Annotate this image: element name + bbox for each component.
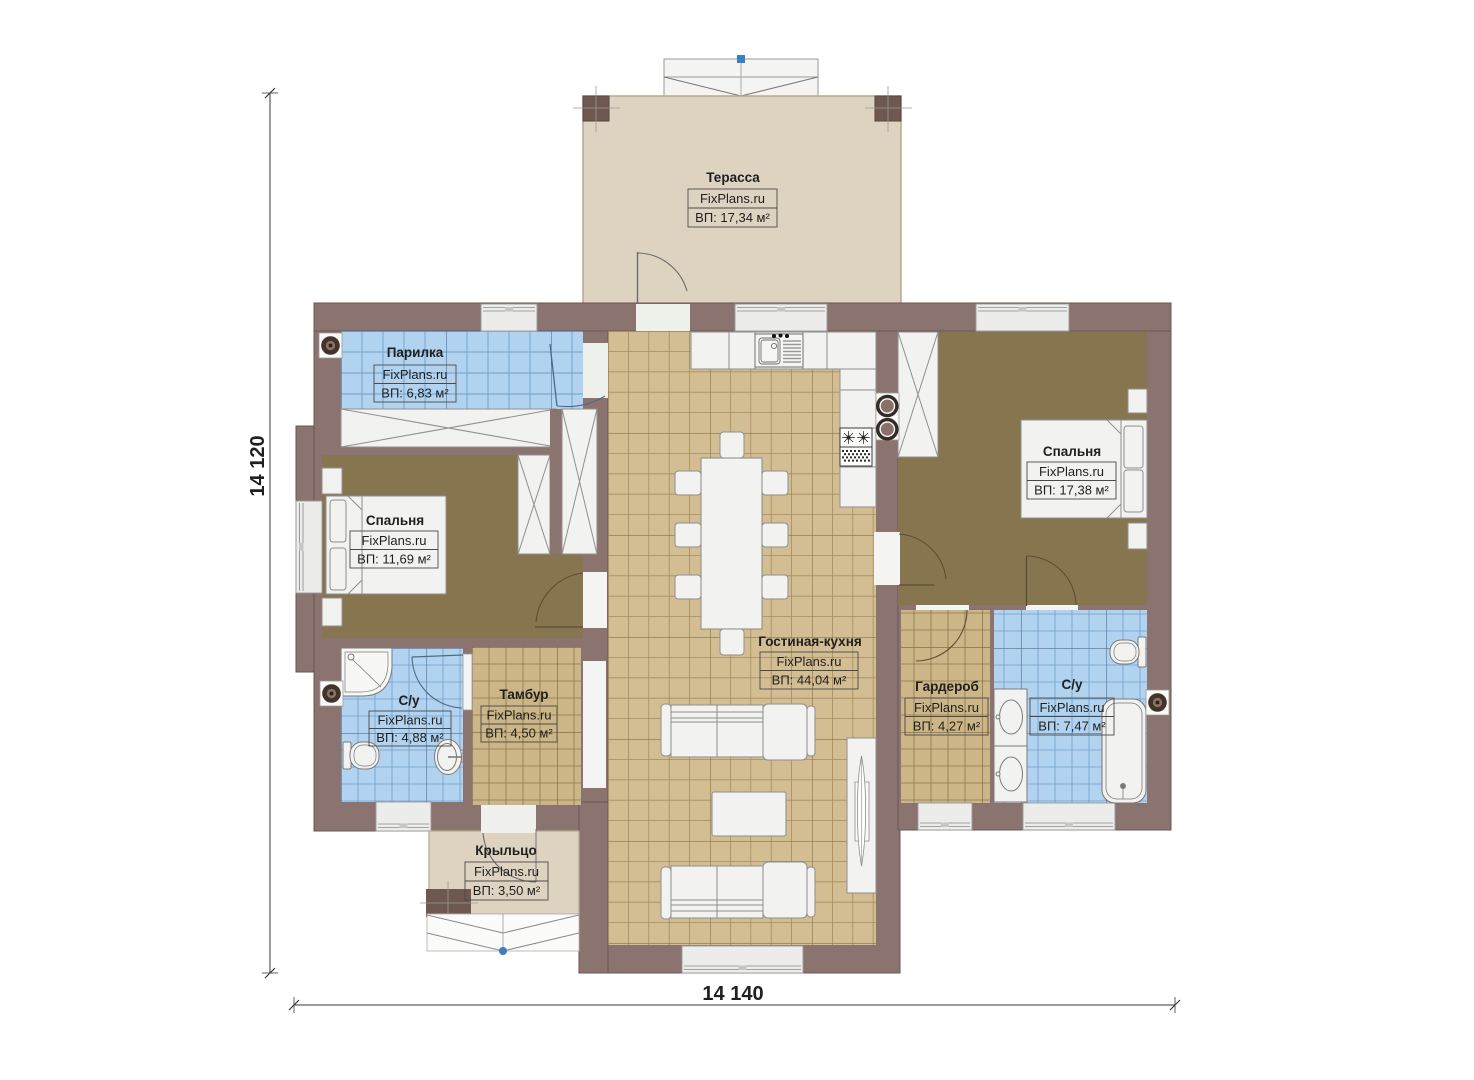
svg-text:Тамбур: Тамбур bbox=[500, 687, 549, 702]
svg-text:ВП: 4,27 м²: ВП: 4,27 м² bbox=[913, 718, 981, 733]
svg-text:С/у: С/у bbox=[1061, 677, 1083, 692]
svg-text:Терасса: Терасса bbox=[706, 170, 760, 185]
svg-text:FixPlans.ru: FixPlans.ru bbox=[1039, 700, 1104, 715]
svg-text:FixPlans.ru: FixPlans.ru bbox=[700, 191, 765, 206]
svg-text:14 120: 14 120 bbox=[247, 435, 269, 496]
svg-text:ВП: 7,47 м²: ВП: 7,47 м² bbox=[1038, 718, 1106, 733]
svg-text:Гостиная-кухня: Гостиная-кухня bbox=[758, 634, 861, 649]
svg-text:FixPlans.ru: FixPlans.ru bbox=[486, 708, 551, 723]
svg-text:FixPlans.ru: FixPlans.ru bbox=[776, 654, 841, 669]
svg-text:ВП: 11,69 м²: ВП: 11,69 м² bbox=[357, 551, 431, 566]
svg-text:FixPlans.ru: FixPlans.ru bbox=[474, 864, 539, 879]
svg-text:Гардероб: Гардероб bbox=[915, 679, 979, 694]
svg-text:ВП: 17,38 м²: ВП: 17,38 м² bbox=[1034, 482, 1109, 497]
svg-text:ВП: 44,04 м²: ВП: 44,04 м² bbox=[772, 672, 847, 687]
svg-text:FixPlans.ru: FixPlans.ru bbox=[914, 700, 979, 715]
svg-text:Спальня: Спальня bbox=[1043, 444, 1101, 459]
svg-text:FixPlans.ru: FixPlans.ru bbox=[377, 712, 442, 727]
svg-text:ВП: 4,88 м²: ВП: 4,88 м² bbox=[376, 730, 444, 745]
svg-text:ВП: 6,83 м²: ВП: 6,83 м² bbox=[381, 385, 449, 400]
svg-text:ВП: 4,50 м²: ВП: 4,50 м² bbox=[485, 726, 553, 741]
svg-text:FixPlans.ru: FixPlans.ru bbox=[1039, 464, 1104, 479]
svg-text:14 140: 14 140 bbox=[702, 983, 763, 1005]
svg-text:Парилка: Парилка bbox=[387, 345, 444, 360]
svg-text:ВП: 17,34 м²: ВП: 17,34 м² bbox=[695, 210, 770, 225]
svg-text:FixPlans.ru: FixPlans.ru bbox=[361, 533, 426, 548]
svg-text:Крыльцо: Крыльцо bbox=[475, 843, 536, 858]
svg-text:FixPlans.ru: FixPlans.ru bbox=[382, 367, 447, 382]
svg-text:Спальня: Спальня bbox=[366, 513, 424, 528]
svg-text:ВП: 3,50 м²: ВП: 3,50 м² bbox=[473, 883, 541, 898]
svg-text:С/у: С/у bbox=[398, 693, 420, 708]
